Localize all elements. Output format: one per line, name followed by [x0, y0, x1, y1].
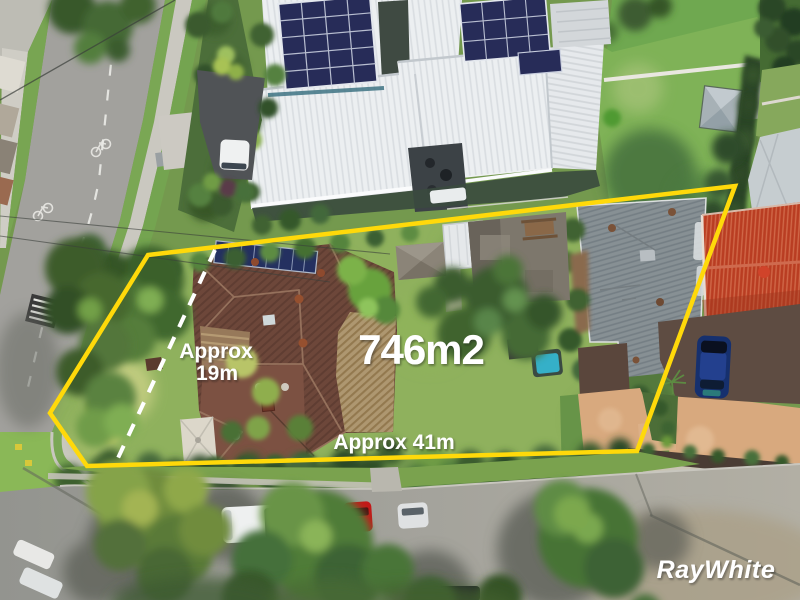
svg-text:19m: 19m	[196, 362, 238, 385]
svg-text:Approx 41m: Approx 41m	[333, 431, 454, 454]
svg-text:746m2: 746m2	[358, 326, 484, 373]
svg-text:Approx: Approx	[179, 340, 253, 363]
svg-text:RayWhite: RayWhite	[657, 556, 776, 584]
